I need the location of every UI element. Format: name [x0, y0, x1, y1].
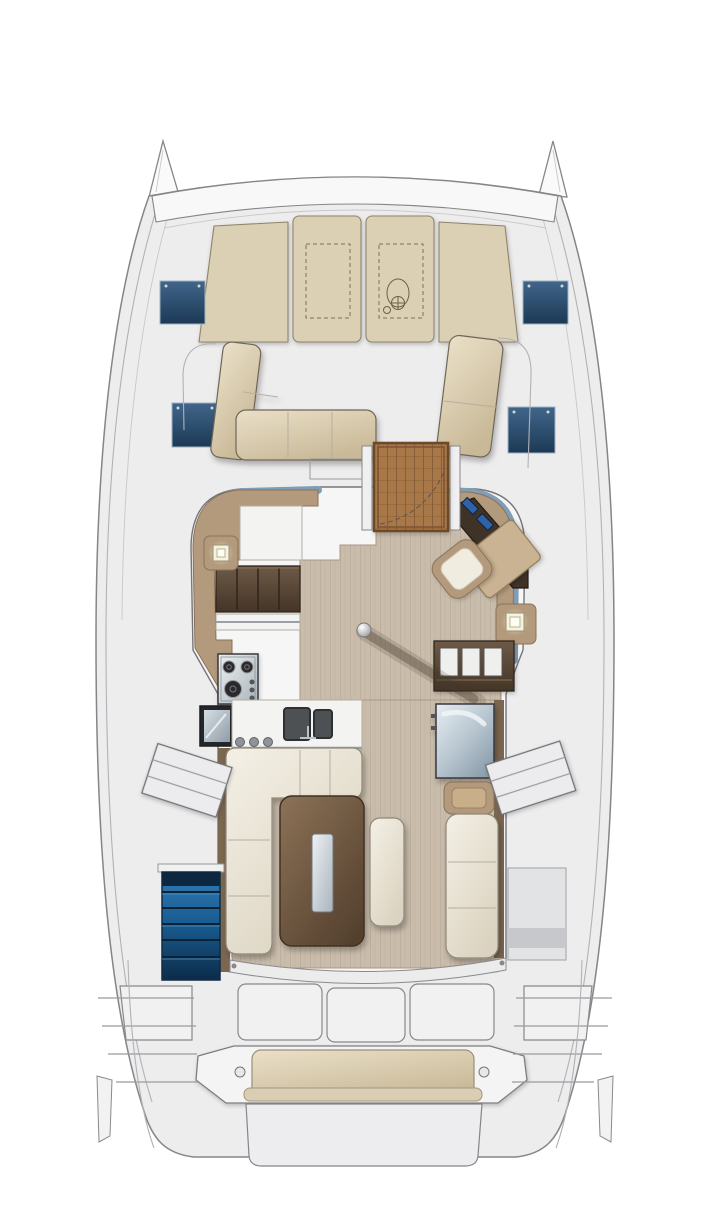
forward-door-teak-grate: [374, 443, 448, 531]
cockpit-locker-panel: [327, 988, 405, 1042]
bench-hinge: [235, 1067, 245, 1077]
double-sink: [284, 708, 332, 740]
sink-counter: [232, 700, 362, 750]
sunpad-panel: [293, 216, 361, 342]
stern-bench-backrest: [244, 1088, 482, 1101]
dinette-table: [280, 796, 364, 946]
dinette-bench: [370, 818, 404, 926]
cockpit-locker-panel: [238, 984, 322, 1040]
bench-hinge: [479, 1067, 489, 1077]
stove: [218, 654, 258, 704]
deck-hatch-forward-port: [160, 281, 205, 324]
cockpit-locker-panel: [524, 986, 592, 1040]
fridge: [431, 704, 494, 778]
deck-plan-canvas: [0, 0, 710, 1232]
port-hull-hatch: [200, 706, 234, 746]
stern-bench: [196, 1046, 527, 1103]
reading-lamp-port: [204, 536, 238, 570]
davit-platform: [246, 1104, 482, 1166]
door-post: [450, 446, 460, 530]
sunpad-panel: [439, 222, 518, 342]
foredeck-sunpads: [199, 216, 518, 342]
reading-lamp-starboard: [496, 604, 536, 644]
port-companionway-stairs: [158, 864, 224, 980]
door-post: [362, 446, 372, 530]
cockpit-locker-panel: [410, 984, 494, 1040]
salon-bench-starboard: [446, 814, 498, 958]
forward-door: [362, 443, 460, 531]
deck-hatch-mid-starboard: [508, 407, 555, 453]
drawer-unit: [444, 782, 494, 814]
starboard-aft-deck-panel: [508, 868, 566, 960]
deck-hatch-forward-starboard: [523, 281, 568, 324]
catamaran-deck-plan: [0, 0, 710, 1232]
deck-hatch-mid-port: [172, 403, 218, 447]
sunpad-panel: [199, 222, 288, 342]
galley-lockers: [216, 566, 300, 612]
